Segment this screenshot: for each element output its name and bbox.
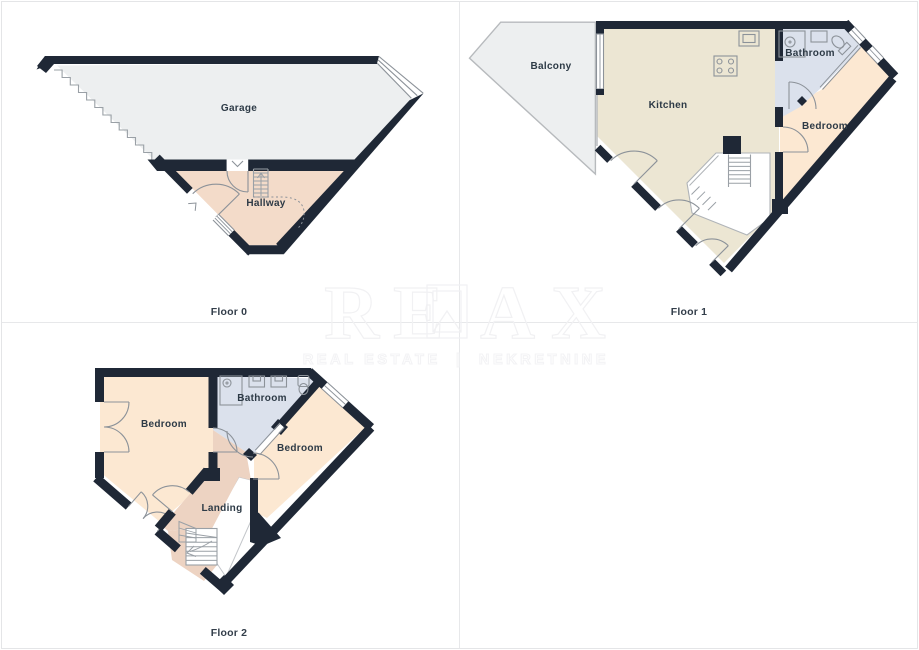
svg-text:Bathroom: Bathroom [785, 48, 835, 59]
svg-text:Bathroom: Bathroom [237, 393, 287, 404]
svg-text:Bedroom: Bedroom [277, 443, 323, 454]
svg-text:Bedroom: Bedroom [802, 121, 848, 132]
svg-text:RE: RE [324, 271, 458, 355]
svg-text:Kitchen: Kitchen [649, 100, 688, 111]
svg-text:Garage: Garage [221, 103, 257, 114]
svg-text:AX: AX [480, 271, 622, 355]
svg-text:Floor 0: Floor 0 [211, 306, 247, 318]
svg-text:Landing: Landing [202, 503, 243, 514]
svg-text:Hallway: Hallway [246, 198, 285, 209]
svg-text:Floor 2: Floor 2 [211, 627, 247, 639]
svg-text:REAL ESTATE | NEKRETNINE: REAL ESTATE | NEKRETNINE [303, 352, 609, 368]
svg-text:Balcony: Balcony [530, 61, 571, 72]
svg-text:Bedroom: Bedroom [141, 419, 187, 430]
svg-text:Floor 1: Floor 1 [671, 306, 707, 318]
